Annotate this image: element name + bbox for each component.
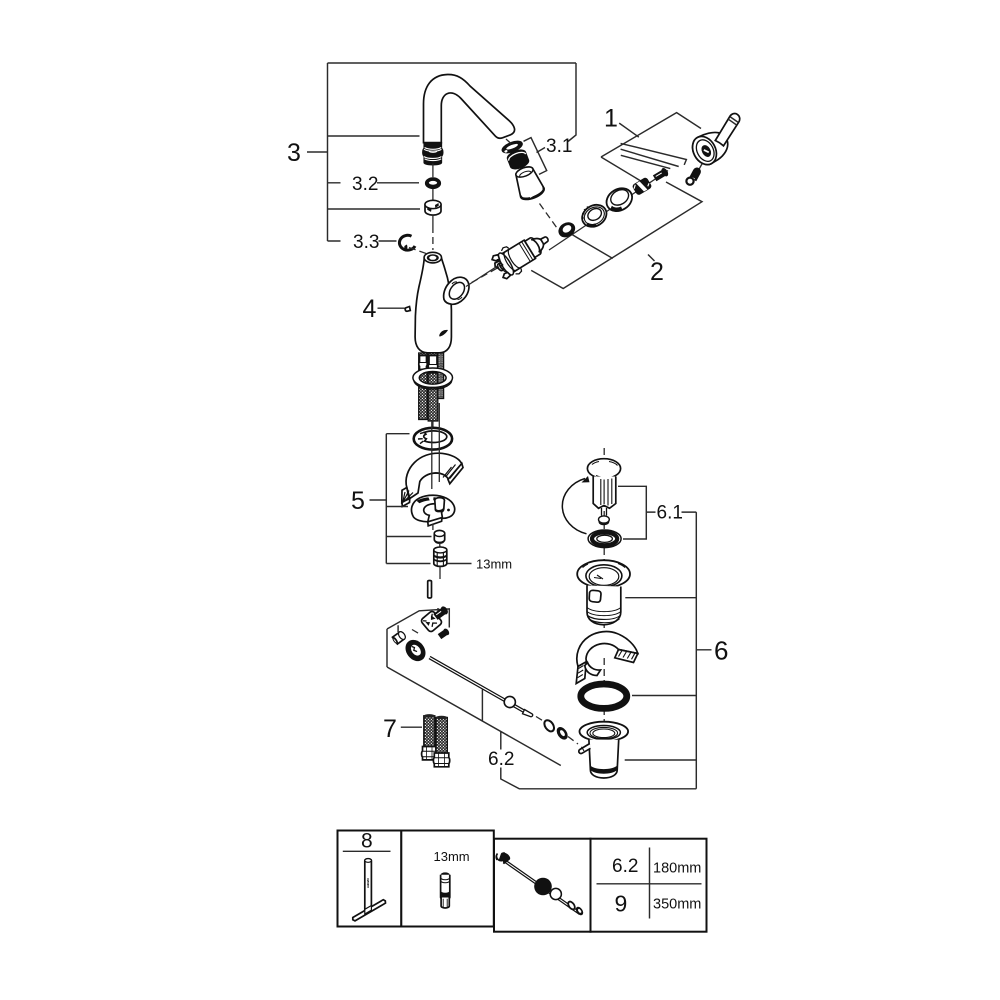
svg-text:3.2: 3.2 <box>352 174 378 195</box>
svg-text:8: 8 <box>361 830 373 853</box>
svg-text:2: 2 <box>650 258 664 286</box>
svg-text:6.2: 6.2 <box>488 749 514 770</box>
svg-text:1: 1 <box>604 105 618 133</box>
svg-text:9: 9 <box>615 891 628 917</box>
svg-text:13mm: 13mm <box>476 557 512 572</box>
svg-text:3: 3 <box>287 139 301 167</box>
svg-text:6: 6 <box>714 636 728 666</box>
svg-text:3.3: 3.3 <box>353 232 379 253</box>
svg-text:13mm: 13mm <box>434 849 470 864</box>
svg-text:7: 7 <box>383 715 397 743</box>
svg-text:6.1: 6.1 <box>657 503 683 524</box>
svg-text:6.2: 6.2 <box>612 856 638 877</box>
svg-text:180mm: 180mm <box>653 861 701 877</box>
svg-text:5: 5 <box>351 487 365 515</box>
svg-text:4: 4 <box>363 295 377 323</box>
svg-text:3.1: 3.1 <box>546 136 572 157</box>
svg-text:350mm: 350mm <box>653 897 701 913</box>
